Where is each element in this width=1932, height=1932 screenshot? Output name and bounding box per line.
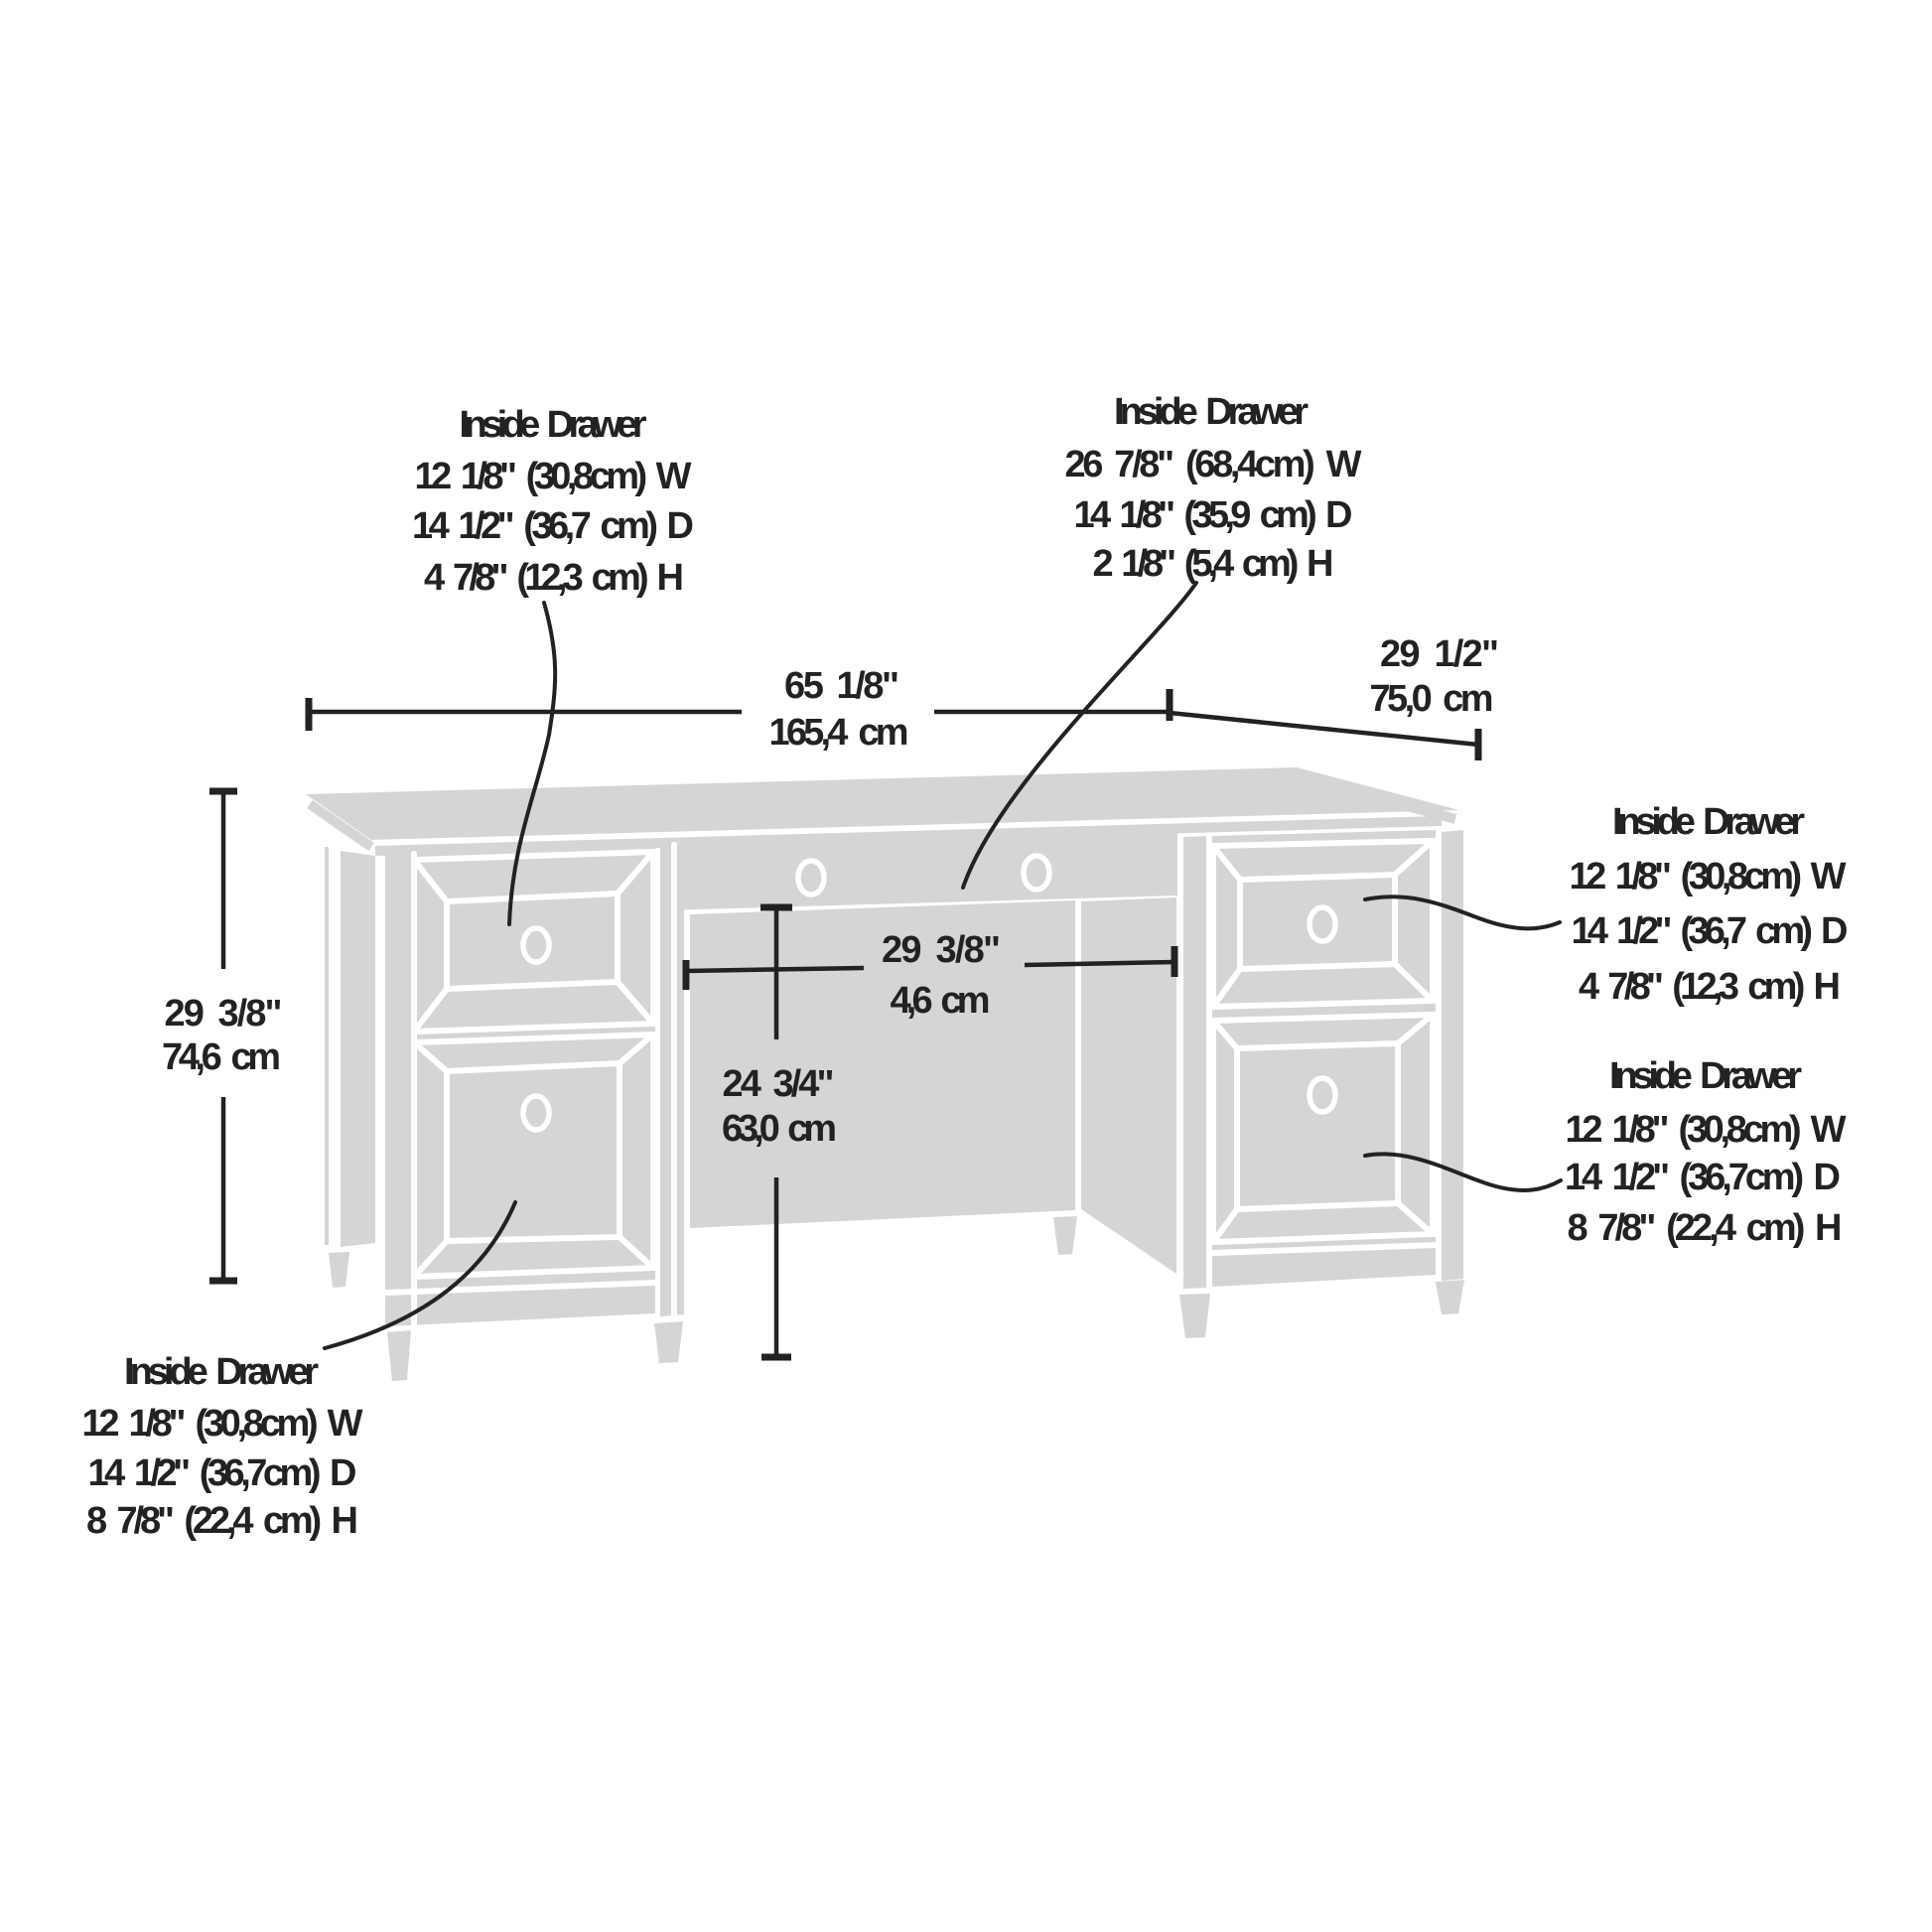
- svg-text:4 7/8" (12,3 cm) H: 4 7/8" (12,3 cm) H: [1579, 966, 1841, 1008]
- svg-text:12 1/8" (30,8cm) W: 12 1/8" (30,8cm) W: [415, 456, 692, 497]
- svg-text:74,6 cm: 74,6 cm: [162, 1036, 281, 1078]
- svg-text:Inside Drawer: Inside Drawer: [1612, 801, 1805, 843]
- svg-text:12 1/8" (30,8cm) W: 12 1/8" (30,8cm) W: [82, 1403, 363, 1445]
- svg-text:65 1/8": 65 1/8": [784, 665, 899, 707]
- svg-text:14 1/2" (36,7 cm) D: 14 1/2" (36,7 cm) D: [412, 505, 694, 547]
- svg-text:14 1/8" (35,9 cm) D: 14 1/8" (35,9 cm) D: [1074, 494, 1353, 536]
- svg-text:8 7/8" (22,4 cm) H: 8 7/8" (22,4 cm) H: [1568, 1207, 1843, 1249]
- svg-text:29 3/8": 29 3/8": [882, 929, 1001, 971]
- svg-text:63,0 cm: 63,0 cm: [722, 1108, 837, 1150]
- svg-text:Inside Drawer: Inside Drawer: [1609, 1055, 1802, 1097]
- svg-text:29 1/2": 29 1/2": [1380, 633, 1499, 675]
- svg-text:75,0 cm: 75,0 cm: [1370, 678, 1494, 720]
- svg-text:14 1/2" (36,7cm) D: 14 1/2" (36,7cm) D: [88, 1452, 357, 1494]
- svg-text:8 7/8" (22,4 cm) H: 8 7/8" (22,4 cm) H: [86, 1500, 358, 1542]
- svg-text:24 3/4": 24 3/4": [723, 1063, 835, 1105]
- svg-text:12 1/8" (30,8cm) W: 12 1/8" (30,8cm) W: [1566, 1109, 1847, 1151]
- svg-text:4,6 cm: 4,6 cm: [891, 980, 991, 1022]
- svg-text:26 7/8" (68,4cm) W: 26 7/8" (68,4cm) W: [1065, 444, 1362, 485]
- svg-text:29 3/8": 29 3/8": [165, 993, 283, 1035]
- svg-text:Inside Drawer: Inside Drawer: [124, 1351, 319, 1393]
- svg-text:165,4 cm: 165,4 cm: [769, 712, 909, 754]
- svg-text:14 1/2" (36,7cm) D: 14 1/2" (36,7cm) D: [1565, 1157, 1841, 1198]
- svg-text:4 7/8" (12,3 cm) H: 4 7/8" (12,3 cm) H: [424, 557, 684, 599]
- svg-text:12 1/8" (30,8cm) W: 12 1/8" (30,8cm) W: [1570, 856, 1847, 897]
- svg-text:Inside Drawer: Inside Drawer: [1114, 391, 1309, 433]
- svg-text:14 1/2" (36,7 cm) D: 14 1/2" (36,7 cm) D: [1572, 910, 1849, 952]
- svg-text:2 1/8" (5,4 cm) H: 2 1/8" (5,4 cm) H: [1093, 543, 1334, 585]
- svg-text:Inside Drawer: Inside Drawer: [460, 404, 647, 446]
